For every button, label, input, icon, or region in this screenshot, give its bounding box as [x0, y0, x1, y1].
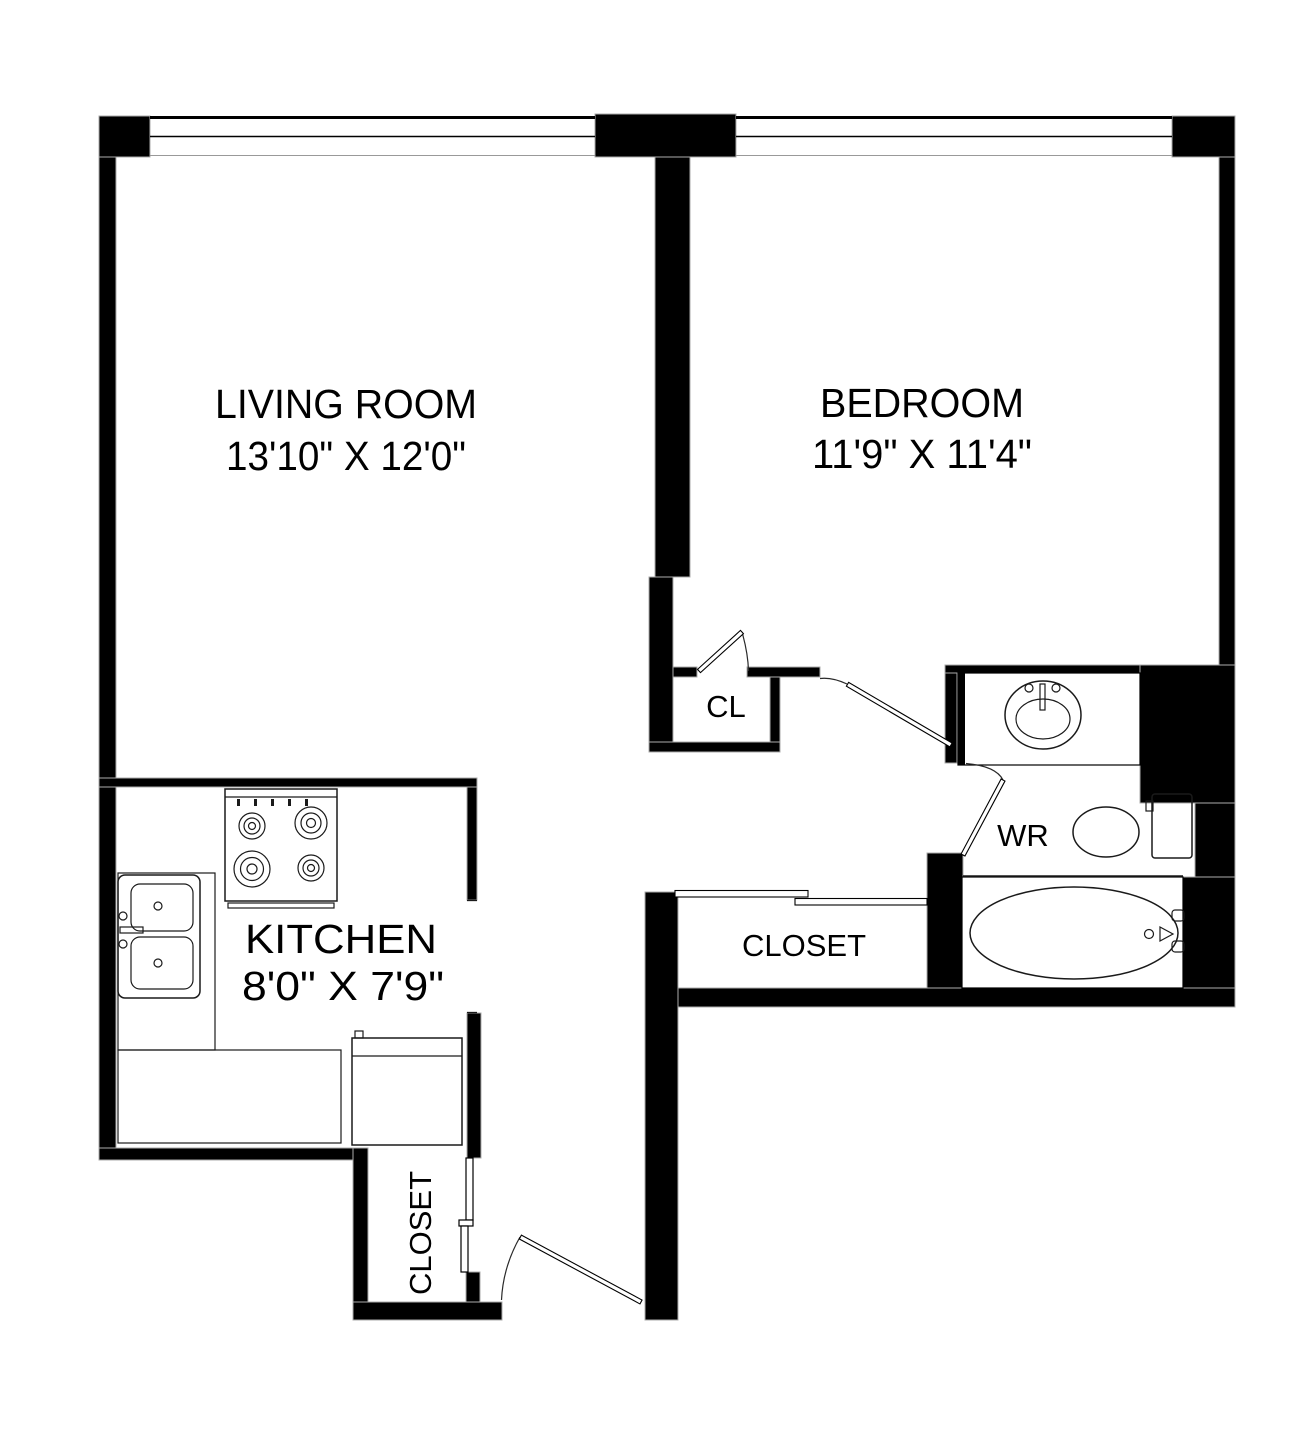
burner: [234, 851, 270, 887]
bathroom-right-wall-lower: [1183, 877, 1235, 988]
kitchen-right-wall-lower: [467, 1013, 481, 1158]
kitchen-right-wall-upper: [467, 787, 477, 900]
toilet: [1073, 794, 1192, 858]
bedroom-label: BEDROOM: [820, 380, 1024, 426]
vanity-left-wall: [958, 673, 965, 765]
hallway-wall: [645, 892, 678, 1320]
hall-closet-sliding-door: [675, 891, 927, 906]
kitchen-top-wall: [99, 778, 477, 787]
bedroom-door-jamb: [945, 665, 957, 763]
refrigerator: [352, 1031, 462, 1145]
top-middle-wall-block: [595, 114, 736, 157]
bedroom-closet-top-wall-left: [673, 667, 697, 677]
entry-closet-label: CLOSET: [403, 1171, 438, 1295]
entry-closet-left-wall: [353, 1148, 368, 1303]
bedroom-closet-door: [698, 630, 749, 672]
bedroom-door: [820, 678, 952, 747]
living-room-dimensions: 13'10" X 12'0": [226, 433, 466, 479]
entry-closet-thin-wall-upper: [466, 1158, 473, 1220]
bedroom-closet-bottom-wall: [649, 742, 780, 752]
living-room-window: [150, 118, 595, 156]
burner: [239, 813, 265, 839]
living-bedroom-partition-stub: [649, 577, 673, 752]
thin-partitions: [459, 673, 1183, 1272]
bathroom-right-wall-upper: [1140, 665, 1235, 803]
living-bedroom-partition-wall: [655, 157, 690, 577]
faucet-handle: [119, 940, 127, 948]
entry-bottom-wall: [353, 1302, 502, 1320]
bedroom-closet-right-wall: [770, 677, 780, 743]
bathroom-top-wall: [945, 665, 1147, 673]
kitchen-counter-bottom: [118, 1050, 341, 1143]
burner: [298, 855, 324, 881]
entry-closet-door-jamb: [466, 1272, 480, 1302]
kitchen-label: KITCHEN: [245, 916, 437, 962]
bathroom-bottom-wall: [645, 988, 1235, 1007]
entry-door: [502, 1235, 643, 1304]
bedroom-closet-top-wall-right: [747, 667, 820, 677]
bathroom-right-wall-middle: [1195, 803, 1235, 877]
living-room-label: LIVING ROOM: [215, 381, 477, 427]
stove: [225, 789, 337, 908]
faucet-handle: [119, 912, 127, 920]
washroom-label: WR: [997, 818, 1049, 853]
bathtub-surround: [962, 877, 1183, 988]
bedroom-window: [736, 118, 1172, 156]
kitchen-double-sink: [118, 875, 200, 998]
vanity-counter: [958, 673, 1140, 765]
faucet-spout: [120, 927, 143, 933]
bedroom-dimensions: 11'9" X 11'4": [812, 431, 1032, 477]
hall-closet-label: CLOSET: [742, 928, 866, 963]
left-exterior-wall: [99, 116, 116, 1160]
burner: [295, 807, 327, 839]
entry-closet-wall-jog: [459, 1220, 473, 1226]
appliance-knob: [355, 1031, 363, 1038]
top-right-wall-block: [1172, 116, 1235, 157]
washroom-closet-divider-wall: [927, 853, 963, 988]
entry-closet-thin-wall-lower: [461, 1226, 468, 1272]
top-left-wall-block: [99, 116, 150, 157]
bedroom-closet-label: CL: [706, 689, 746, 724]
floor-plan-page: LIVING ROOM 13'10" X 12'0" BEDROOM 11'9"…: [0, 0, 1309, 1440]
floor-plan: LIVING ROOM 13'10" X 12'0" BEDROOM 11'9"…: [0, 0, 1309, 1440]
kitchen-bottom-wall: [99, 1148, 368, 1160]
kitchen-dimensions: 8'0" X 7'9": [242, 963, 444, 1009]
